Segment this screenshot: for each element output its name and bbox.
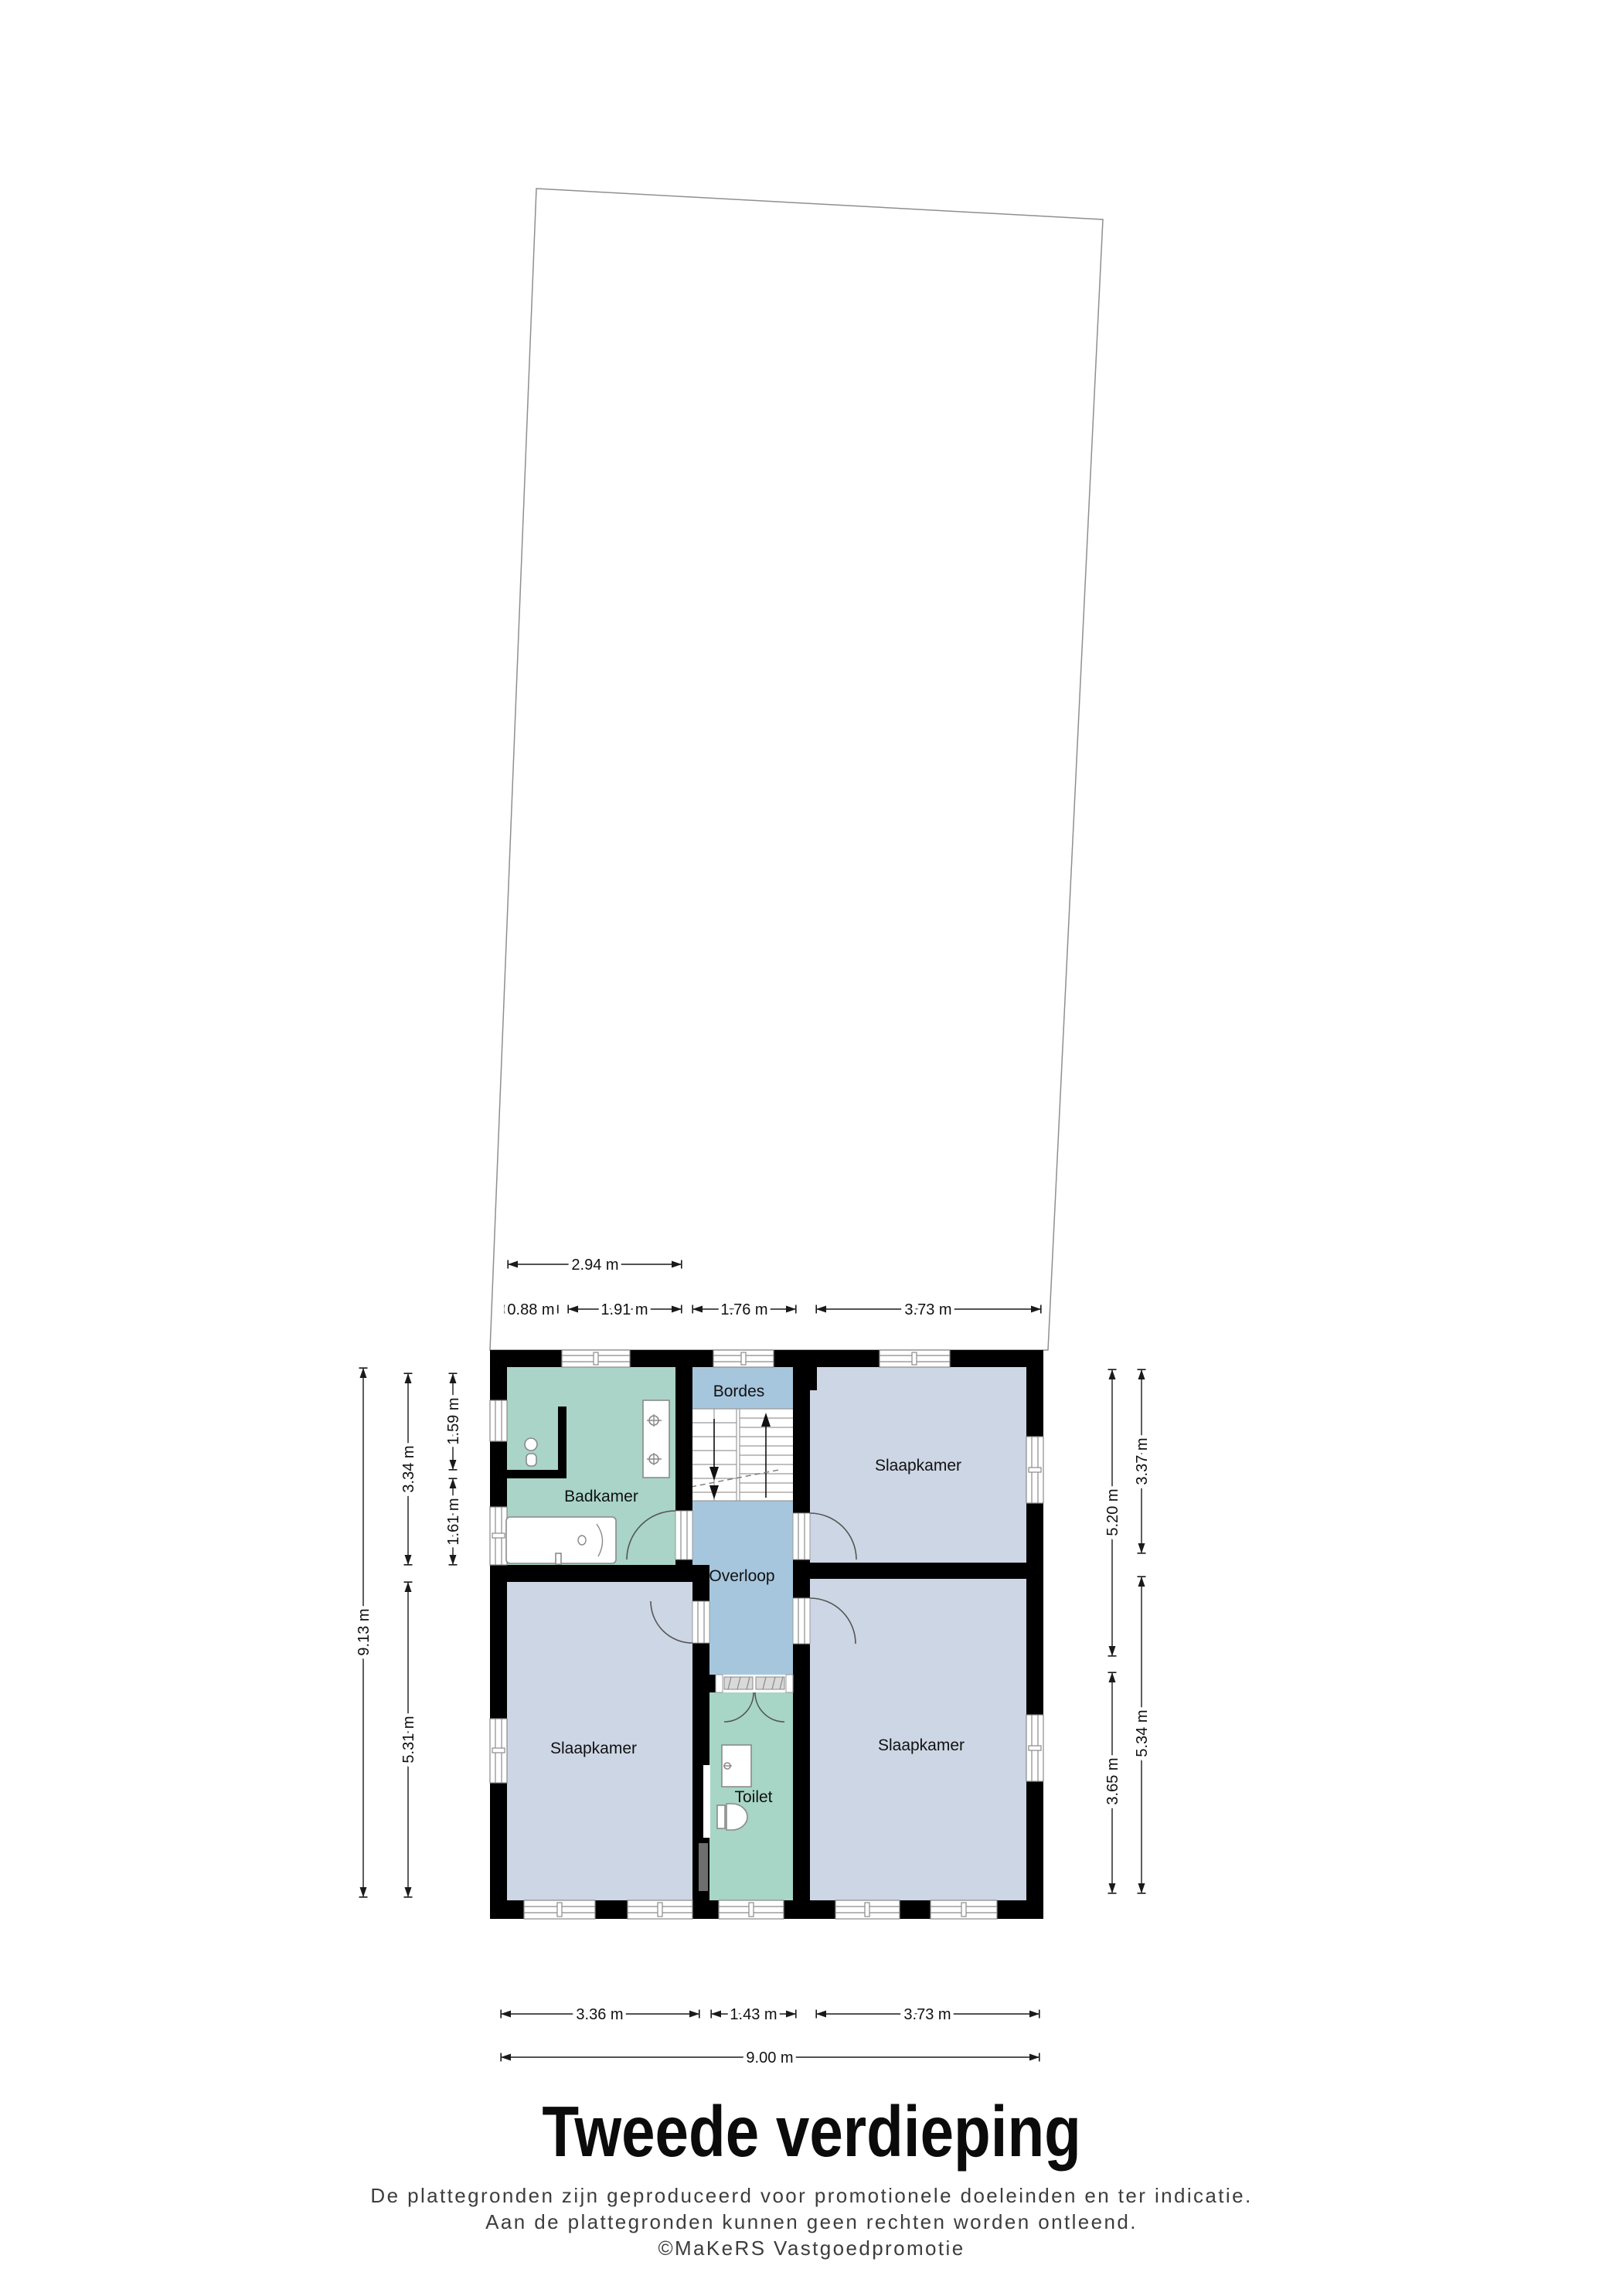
svg-text:1.61 m: 1.61 m <box>445 1498 462 1545</box>
toilet-fixture <box>717 1804 747 1830</box>
window <box>562 1350 630 1367</box>
dimension-right: 5.20 m 3.65 m 3.37 m 5.34 m <box>1104 1369 1151 1893</box>
svg-text:3.73 m: 3.73 m <box>904 1301 951 1318</box>
room-label-badkamer: Badkamer <box>564 1488 638 1505</box>
svg-text:5.31 m: 5.31 m <box>400 1716 417 1763</box>
room-label-slaapkamer-top-right: Slaapkamer <box>875 1457 961 1475</box>
svg-text:9.00 m: 9.00 m <box>746 2049 793 2066</box>
window <box>1026 1437 1043 1503</box>
window <box>1026 1715 1043 1781</box>
window <box>524 1900 595 1919</box>
chimney-stub <box>810 1367 817 1390</box>
disclaimer: De plattegronden zijn geproduceerd voor … <box>0 2182 1623 2261</box>
svg-text:5.34 m: 5.34 m <box>1134 1709 1151 1757</box>
room-label-overloop: Overloop <box>709 1567 774 1585</box>
nook-wall-horizontal <box>505 1470 567 1478</box>
window <box>628 1900 692 1919</box>
svg-text:3.65 m: 3.65 m <box>1104 1757 1121 1804</box>
bathtub <box>506 1517 616 1564</box>
dimension-bottom-1: 3.36 m 1.43 m 3.73 m <box>501 2006 1039 2023</box>
window <box>931 1900 997 1919</box>
disclaimer-line: Aan de plattegronden kunnen geen rechten… <box>0 2209 1623 2235</box>
disclaimer-line: ©MaKeRS Vastgoedpromotie <box>0 2235 1623 2261</box>
double-washbasin <box>643 1400 669 1478</box>
svg-text:1.91 m: 1.91 m <box>601 1301 648 1318</box>
floorplan-drawing: Bordes Badkamer Overloop Toilet Slaapkam… <box>0 0 1623 2296</box>
page-title: Tweede verdieping <box>0 2088 1623 2175</box>
nook-wall-vertical <box>558 1407 567 1478</box>
svg-text:1.43 m: 1.43 m <box>730 2006 777 2023</box>
svg-text:3.73 m: 3.73 m <box>903 2006 951 2023</box>
window <box>835 1900 900 1919</box>
wall-recess <box>703 1765 710 1838</box>
dimension-left: 9.13 m 3.34 m 5.31 m 1.59 m 1.61 m <box>356 1368 462 1897</box>
window <box>490 1507 507 1565</box>
window <box>713 1350 774 1367</box>
svg-text:2.94 m: 2.94 m <box>571 1257 618 1274</box>
window <box>490 1400 507 1441</box>
window <box>719 1900 784 1919</box>
svg-text:3.37 m: 3.37 m <box>1134 1437 1151 1485</box>
floor-plan: Bordes Badkamer Overloop Toilet Slaapkam… <box>490 1350 1043 1919</box>
room-label-slaapkamer-bottom-left: Slaapkamer <box>550 1740 637 1757</box>
floorplan-page: Bordes Badkamer Overloop Toilet Slaapkam… <box>0 0 1623 2296</box>
plot-outline <box>490 189 1103 1350</box>
svg-text:3.36 m: 3.36 m <box>576 2006 623 2023</box>
room-label-bordes: Bordes <box>713 1383 765 1400</box>
dimension-bottom-2: 9.00 m <box>501 2049 1039 2066</box>
svg-text:3.34 m: 3.34 m <box>400 1445 417 1492</box>
svg-text:1.59 m: 1.59 m <box>445 1397 462 1444</box>
window <box>880 1350 950 1367</box>
disclaimer-line: De plattegronden zijn geproduceerd voor … <box>0 2182 1623 2209</box>
svg-text:5.20 m: 5.20 m <box>1104 1488 1121 1536</box>
svg-text:1.76 m: 1.76 m <box>720 1301 767 1318</box>
window <box>490 1719 507 1783</box>
washbasin-toilet <box>722 1745 751 1787</box>
staircase <box>691 1409 793 1501</box>
svg-text:9.13 m: 9.13 m <box>356 1608 373 1655</box>
shaft <box>698 1842 709 1892</box>
room-label-toilet: Toilet <box>734 1788 772 1806</box>
room-label-slaapkamer-bottom-right: Slaapkamer <box>878 1736 965 1754</box>
svg-text:0.88 m: 0.88 m <box>507 1301 554 1318</box>
